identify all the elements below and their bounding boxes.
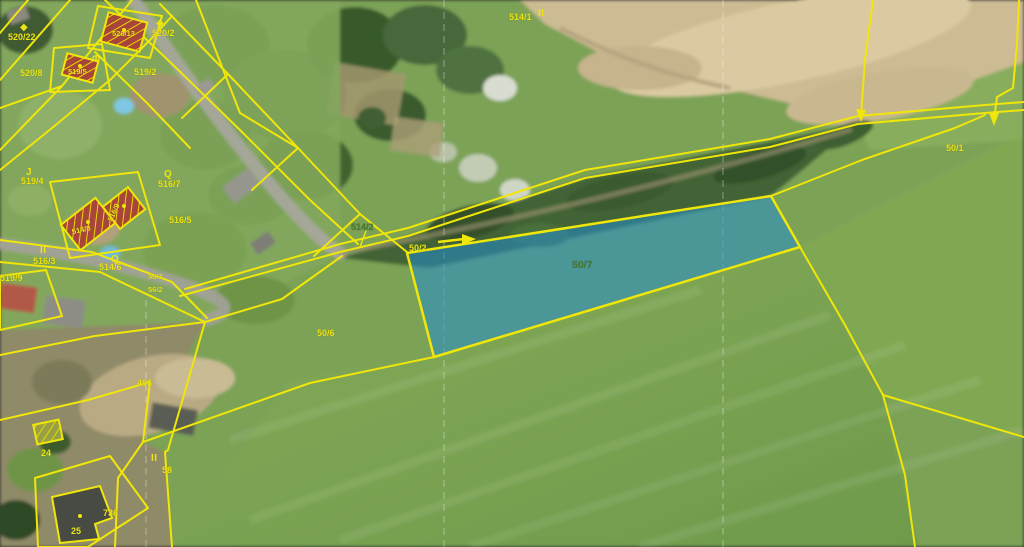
building-24	[33, 420, 63, 445]
parcel-label-496: 496	[137, 378, 152, 388]
parcel-label-520-13: 520/13	[112, 29, 135, 38]
land-use-symbol-icon: Φ	[92, 54, 101, 65]
land-use-symbol-icon: Q	[164, 169, 172, 180]
parcel-label-24: 24	[41, 448, 51, 458]
parcel-label-25: 25	[71, 526, 81, 536]
parcel-label-50-7: 50/7	[572, 259, 593, 271]
land-use-symbol-icon: ◆	[20, 22, 28, 33]
land-use-symbol-icon: II	[538, 8, 545, 19]
parcel-label-516-7: 516/7	[158, 179, 181, 189]
parcel-label-56-3: 56/3	[148, 272, 163, 281]
land-use-symbol-icon: II	[151, 453, 158, 464]
parcel-label-520-8: 520/8	[20, 68, 43, 78]
parcel-label-519-4: 519/4	[21, 176, 44, 186]
land-use-symbol-icon: II	[40, 245, 47, 256]
parcel-label-520-22: 520/22	[8, 32, 36, 42]
map-canvas[interactable]: 520/22 520/8 520/13 519/5 520/2 519/2 51…	[0, 0, 1024, 547]
parcel-label-519-2: 519/2	[134, 67, 157, 77]
parcel-label-519-5: 519/5	[68, 67, 87, 76]
parcel-label-58: 58	[162, 465, 172, 475]
parcel-label-50-1: 50/1	[946, 143, 964, 153]
land-use-symbol-icon: J	[26, 167, 32, 178]
parcel-label-50-2: 50/2	[409, 243, 427, 253]
parcel-label-514-1: 514/1	[509, 12, 532, 22]
parcel-label-56-2: 56/2	[148, 285, 163, 294]
parcel-label-50-6: 50/6	[317, 328, 335, 338]
parcel-label-520-2: 520/2	[152, 28, 175, 38]
parcel-label-516-3: 516/3	[33, 256, 56, 266]
parcel-label-516-5: 516/5	[169, 215, 192, 225]
parcel-label-519-9: 519/9	[0, 273, 23, 283]
parcel-label-736: 736	[103, 508, 118, 518]
parcel-label-514-2: 514/2	[351, 222, 374, 232]
land-use-symbol-icon: ◆	[156, 18, 164, 29]
land-use-symbol-icon: Q	[111, 254, 119, 265]
